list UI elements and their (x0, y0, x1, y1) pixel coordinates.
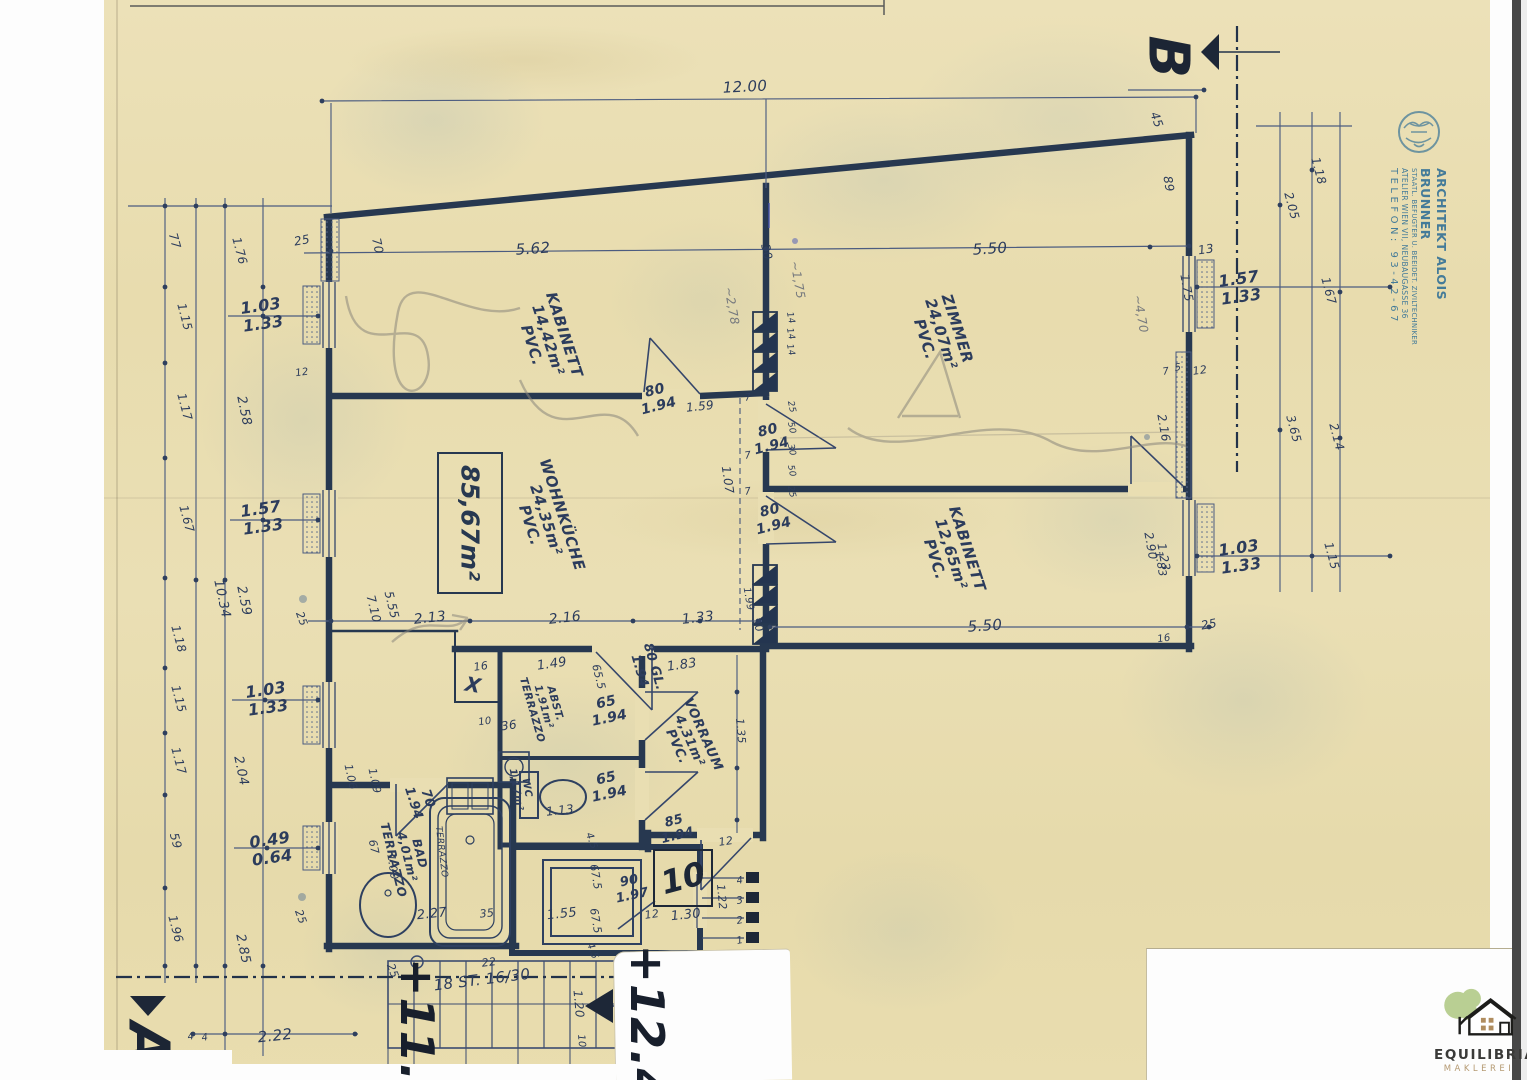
logo-tree-house-icon (1435, 986, 1523, 1042)
section-a-arrow (130, 996, 166, 1016)
washbasin (360, 873, 416, 937)
ink-marks (298, 203, 1150, 901)
apartment-number-box: 10 (653, 849, 713, 907)
stamp-architect-name: ARCHITEKT ALOIS BRUNNER (1418, 168, 1449, 354)
toilet (520, 772, 586, 818)
stamp-address: ATELIER WIEN VII, NEUBAUGASSE 36 (1400, 168, 1409, 354)
dimension-lines (128, 90, 1390, 1056)
lift-cabin (543, 860, 641, 944)
scan-top-edge (130, 5, 884, 7)
scan-edge-shadow (1512, 0, 1521, 1080)
stair-direction-arrow (585, 989, 613, 1023)
scan-top-edge-vertical (883, 0, 885, 15)
scan-margin-left (0, 0, 104, 1080)
total-area-value: 85,67m² (456, 465, 485, 581)
apartment-number: 10 (657, 854, 710, 902)
scan-edge-light (1521, 0, 1527, 1080)
stamp-title: STAATL. BEFUGTER U. BEEIDET. ZIVILTECHNI… (1409, 168, 1417, 354)
equilibria-logo: EQUILIBRIA MAKLEREI (1434, 986, 1524, 1074)
stamp-telephone: TELEFON: 93-42-67 (1386, 168, 1399, 354)
logo-tagline: MAKLEREI (1434, 1064, 1524, 1074)
paper-tear (613, 948, 792, 1080)
total-area-box: 85,67m² (437, 452, 503, 594)
logo-name: EQUILIBRIA (1434, 1047, 1524, 1063)
eagle-emblem (1396, 106, 1442, 158)
landing-step-blocks (746, 872, 759, 943)
floor-plan-drawing (0, 0, 1527, 1080)
scan-corner-bottom-left (104, 1050, 232, 1080)
section-b-arrow (1201, 34, 1219, 70)
scanned-floor-plan-page: 12.005.625.50257030~2,78~1,75141414~4,70… (0, 0, 1527, 1080)
